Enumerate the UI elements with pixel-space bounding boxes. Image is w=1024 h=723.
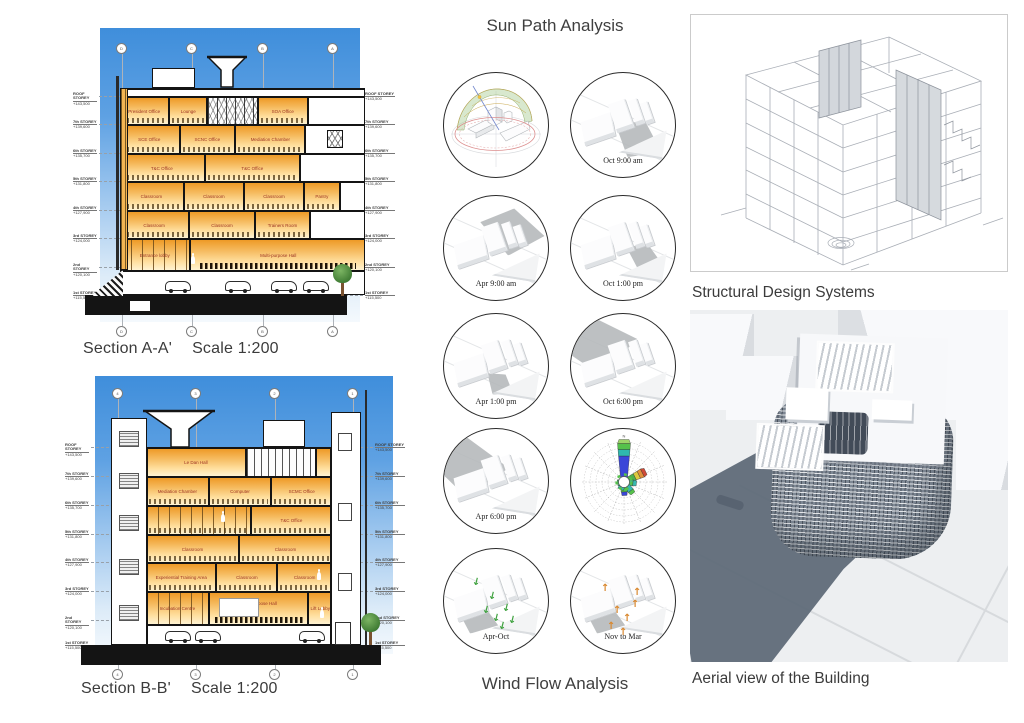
wall [339,183,365,210]
room: T&C Office [250,507,331,534]
wind-rose-diagram: N [570,428,676,534]
room-label: T&C Office [240,166,264,171]
grid-bubble: D [116,43,127,54]
room: Classroom [188,212,253,238]
room-label: Classroom [210,223,234,228]
level-label: 6th STOREY+135,700 [65,501,89,511]
room: Pantry [303,183,339,210]
rose-north-label: N [623,434,626,439]
car [165,281,191,291]
person-figure [321,220,325,228]
wind-flow-nov-mar: ↑ ↑ ↑ ↑ ↑ ↑ ↑ Nov to Mar [570,548,676,654]
wind-arrow: ↓ [471,576,482,589]
room: Trainers Room [254,212,310,238]
wind-arrow: ↑ [607,621,615,632]
grid-bubble: C [186,43,197,54]
car [303,281,329,291]
roof-skylight [755,423,825,471]
section-b-floor-7: Le Dan Hall [147,447,331,476]
person-figure [320,610,324,618]
room: Classroom [147,536,238,562]
room-label: SCMC Office [288,489,316,494]
room: Lounge [168,98,206,124]
grid-line [192,315,193,326]
room: Computer [208,478,271,505]
structural-wireframe [691,15,1007,271]
person-figure [221,514,225,522]
structural-caption: Structural Design Systems [692,284,875,302]
level-label: 5th STOREY+131,800 [375,530,405,540]
curtain-wall [120,88,128,270]
room-label: Mediation Chamber [157,489,198,494]
grid-bubble: 3 [190,388,201,399]
grid-bubble: 4 [112,388,123,399]
level-label: ROOF STOREY+143,500 [365,92,395,102]
section-b-scale: Scale 1:200 [191,680,278,697]
roof-parapet [120,88,365,96]
level-label: 5th STOREY+131,800 [73,177,97,187]
sun-study-oct-6pm: Oct 6:00 pm [570,313,676,419]
level-label: 5th STOREY+131,800 [65,530,89,540]
room: T&C Office [204,155,299,181]
grid-bubble: C [186,326,197,337]
level-label: 6th STOREY+135,700 [375,501,405,511]
grid-line [263,54,264,88]
room: Classroom [215,564,276,591]
room-label: Classroom [293,575,317,580]
tree [333,264,352,296]
roof-skylight [815,341,895,394]
wall [307,98,365,124]
wind-rose: N [571,429,675,533]
grid-bubble: 2 [269,388,280,399]
penthouse [263,420,305,447]
section-a-caption: Section A-A'Scale 1:200 [83,340,279,358]
time-label: Oct 9:00 am [571,156,675,165]
wind-arrow: ↑ [613,605,621,616]
grid-line [333,54,334,88]
stair-flight [119,515,139,531]
level-label: 6th STOREY+135,700 [365,149,395,159]
section-b-caption: Section B-B'Scale 1:200 [81,680,278,698]
level-label: 4th STOREY+127,900 [365,206,395,216]
roof-funnel [143,408,215,448]
tree-canopy [333,264,352,283]
grid-bubble: B [257,43,268,54]
grid-bubble: 3 [190,669,201,680]
room: Classroom [238,536,331,562]
time-label: Oct 6:00 pm [571,397,675,406]
room: Classroom [276,564,331,591]
level-label: 7th STOREY+139,600 [65,472,89,482]
section-a-floor-2: Entrance lobby Multi-purpose Hall [120,238,365,270]
room-label: Classroom [274,547,298,552]
car [271,281,297,291]
level-label: 3rd STOREY+124,000 [65,587,89,597]
wind-arrow: ↑ [633,587,641,598]
wind-arrow: ↑ [623,613,631,624]
room-label: Classroom [202,194,226,199]
facade-mast [365,390,367,645]
level-label: 5th STOREY+131,800 [365,177,395,187]
window [338,503,352,521]
level-label: 1st STOREY+115,500 [365,291,395,301]
level-label: 4th STOREY+127,900 [65,558,89,568]
penthouse [152,68,195,88]
room-label: Incubation Centre [159,606,197,611]
level-label: 4th STOREY+127,900 [73,206,97,216]
window [338,433,352,451]
tree-canopy [361,613,380,632]
season-label: Nov to Mar [571,632,675,641]
time-label: Oct 1:00 pm [571,279,675,288]
sun-study-apr-9am: Apr 9:00 am [443,195,549,301]
aerial-view-panel [690,310,1008,662]
context-building [956,394,1008,490]
grid-bubble: 2 [269,669,280,680]
section-b-floor-6: Mediation Chamber Computer SCMC Office [147,476,331,505]
room: Le Dan Hall [147,449,245,476]
room: Incubation Centre [147,593,208,624]
wind-arrow: ↑ [601,583,609,594]
wind-arrow: ↑ [631,599,639,610]
room-label: Trainers Room [267,223,299,228]
room: SCE Office [120,126,179,153]
person-figure [191,256,195,264]
room-label: Mediation Chamber [250,137,291,142]
room: Classroom [183,183,243,210]
grid-bubble: A [327,326,338,337]
sun-path-dome [444,73,548,177]
projection-screen [219,598,259,617]
window [338,573,352,591]
room: Classroom [120,212,188,238]
entrance-door [335,622,351,645]
section-a-panel: ROOF STOREY+143,500ROOF STOREY+143,500 7… [75,18,395,368]
glass-partition [245,449,315,476]
room-label: T&C Office [279,518,303,523]
grid-bubble: B [257,326,268,337]
clerestory-windows [206,98,256,124]
person-figure [329,220,333,228]
grid-line [263,315,264,326]
wind-arrow: ↓ [501,602,512,615]
section-a-title: Section A-A' [83,340,172,357]
roof-structure [785,387,828,420]
basement-notch [130,301,150,311]
structural-panel [690,14,1008,272]
room-label: Pantry [314,194,329,199]
tree-trunk [341,282,344,296]
grid-line [122,54,123,88]
stair-flight [119,605,139,621]
room: T&C Office [120,155,204,181]
time-label: Apr 9:00 am [444,279,548,288]
room-label: Computer [229,489,251,494]
car [195,631,221,641]
room-label: SOA Office [271,109,295,114]
grid-bubble: 1 [347,388,358,399]
wall [309,212,365,238]
service-tower [331,412,361,645]
sun-study-apr-6pm: Apr 6:00 pm [443,428,549,534]
room: Lift Lobby [307,593,331,624]
stair-flight [119,431,139,447]
sun-study-oct-9am: Oct 9:00 am [570,72,676,178]
room: Mediation Chamber [234,126,304,153]
room-label: SCE Office [137,137,161,142]
room-label: Classroom [235,575,259,580]
car [165,631,191,641]
section-a-floor-7: President Office Lounge SOA Office [120,96,365,124]
stair-flight [119,473,139,489]
room-label: Experiential Training Area [155,575,208,580]
room-label: Le Dan Hall [183,460,209,465]
grid-bubble: 4 [112,669,123,680]
room [315,449,331,476]
level-label: 7th STOREY+139,600 [73,120,97,130]
wind-arrow: ↓ [497,620,508,633]
section-b-panel: ROOF STOREY+143,500ROOF STOREY+143,500 7… [73,372,407,722]
room: SCNC Office [179,126,235,153]
time-label: Apr 1:00 pm [444,397,548,406]
room: Classroom [120,183,183,210]
roof-structure [872,399,913,420]
window [327,130,343,148]
wind-flow-title: Wind Flow Analysis [430,674,680,694]
level-label: 3rd STOREY+124,000 [73,234,97,244]
ground [81,645,381,665]
room: Entrance lobby [120,240,189,270]
level-label: 7th STOREY+139,600 [365,120,395,130]
room-label: SCNC Office [194,137,222,142]
section-a-floor-4: Classroom Classroom Classroom Pantry [120,181,365,210]
room: Experiential Training Area [147,564,215,591]
sun-study-apr-1pm: Apr 1:00 pm [443,313,549,419]
level-label: ROOF STOREY+143,500 [73,92,97,107]
section-b-title: Section B-B' [81,680,171,697]
room-label: Classroom [262,194,286,199]
level-label: ROOF STOREY+143,500 [375,443,405,453]
level-label: 2nd STOREY+120,100 [365,263,395,273]
room-label: Classroom [142,223,166,228]
tree-trunk [369,631,372,645]
ground [85,295,347,315]
room-label: President Office [127,109,161,114]
room: Classroom [243,183,303,210]
grid-line [333,315,334,326]
room-label: Entrance lobby [139,253,171,258]
stair-tower [111,418,147,645]
car [299,631,325,641]
sun-path-diagram [443,72,549,178]
room-label: Multi-purpose Hall [259,253,297,258]
section-b-floor-5: T&C Office [147,505,331,534]
roof-cowl [207,55,247,89]
grid-line [122,315,123,326]
grid-bubble: A [327,43,338,54]
section-a-scale: Scale 1:200 [192,340,279,357]
room: Mediation Chamber [147,478,208,505]
room-label: Classroom [181,547,205,552]
grid-bubble: 1 [347,669,358,680]
wind-flow-apr-oct: ↓ ↓ ↓ ↓ ↓ ↓ ↓ Apr-Oct [443,548,549,654]
season-label: Apr-Oct [444,632,548,641]
level-label: 4th STOREY+127,900 [375,558,405,568]
car [225,281,251,291]
room-label: Classroom [140,194,164,199]
sun-path-title: Sun Path Analysis [430,16,680,36]
time-label: Apr 6:00 pm [444,512,548,521]
tree [361,613,380,645]
aerial-caption: Aerial view of the Building [692,670,870,688]
room-label: Lounge [180,109,197,114]
presentation-board: ROOF STOREY+143,500ROOF STOREY+143,500 7… [0,0,1024,723]
room: SCMC Office [270,478,331,505]
section-a-floor-5: T&C Office T&C Office [120,153,365,181]
person-figure [317,572,321,580]
level-label: 2nd STOREY+120,100 [65,616,89,631]
stair-flight [119,559,139,575]
level-label: 3rd STOREY+124,000 [375,587,405,597]
level-label: 7th STOREY+139,600 [375,472,405,482]
section-b-floor-4: Classroom Classroom [147,534,331,562]
grid-bubble: D [116,326,127,337]
level-label: 3rd STOREY+124,000 [365,234,395,244]
level-label: 6th STOREY+135,700 [73,149,97,159]
level-label: 2nd STOREY+120,100 [73,263,97,278]
wall [299,155,365,181]
room [147,507,250,534]
facade-mast [116,76,119,270]
room: SOA Office [257,98,307,124]
section-b-floor-3: Experiential Training Area Classroom Cla… [147,562,331,591]
level-label: ROOF STOREY+143,500 [65,443,89,458]
sun-study-oct-1pm: Oct 1:00 pm [570,195,676,301]
room-label: T&C Office [150,166,174,171]
